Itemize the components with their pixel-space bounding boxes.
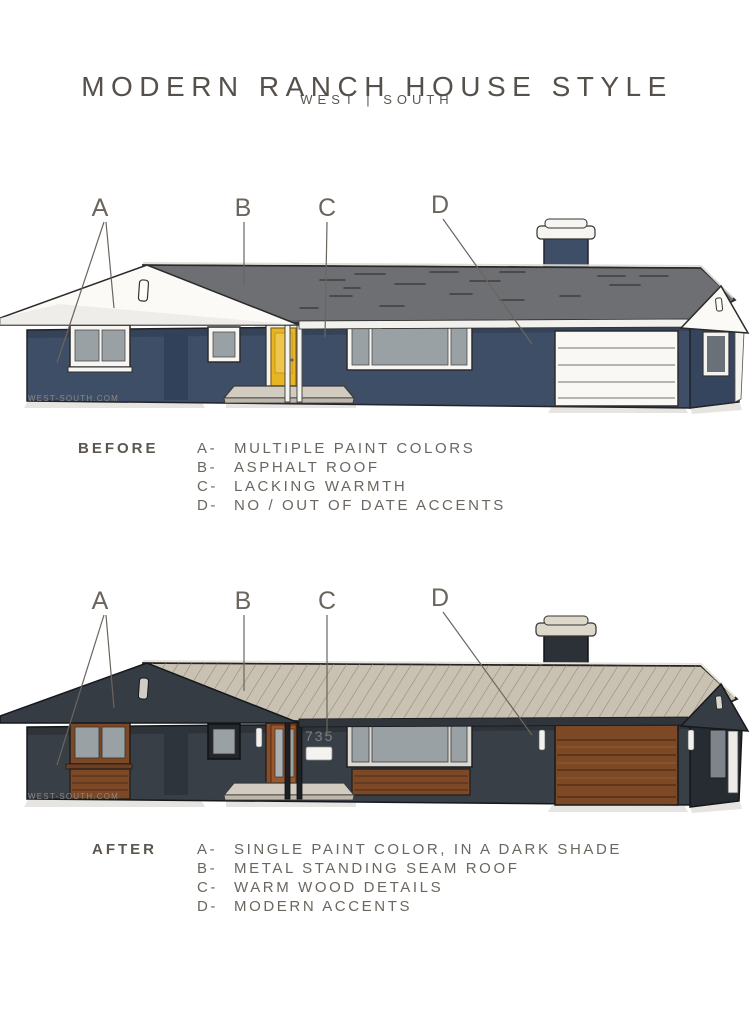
item-letter: B- [197,458,234,477]
item-text: WARM WOOD DETAILS [234,878,443,897]
callout-letter-b: B [235,587,252,615]
watermark: WEST-SOUTH.COM [28,792,119,801]
porch-post [285,322,290,402]
item-letter: D- [197,897,234,916]
page-subtitle: WEST | SOUTH [0,92,754,107]
list-item: C-LACKING WARMTH [197,477,754,496]
item-text: MODERN ACCENTS [234,897,412,916]
side-window [707,336,725,372]
callout-letter-b: B [235,194,252,222]
item-letter: C- [197,878,234,897]
gable-vent [138,280,148,302]
item-letter: A- [197,840,234,859]
modern-sconce-light [539,730,545,750]
list-item: D-NO / OUT OF DATE ACCENTS [197,496,754,515]
list-item: D-MODERN ACCENTS [197,897,754,916]
before-house-illustration: WEST-SOUTH.COM A B C D [0,180,754,430]
porch-post [297,322,302,402]
watermark: WEST-SOUTH.COM [28,394,119,403]
callout-letter-d: D [431,191,449,219]
infographic-page: MODERN RANCH HOUSE STYLE WEST | SOUTH [0,0,754,1024]
garage-door [555,331,678,406]
modern-sconce-light [256,728,262,747]
list-item: A-SINGLE PAINT COLOR, IN A DARK SHADE [197,840,754,859]
item-text: SINGLE PAINT COLOR, IN A DARK SHADE [234,840,622,859]
modern-sconce-light [688,730,694,750]
item-letter: B- [197,859,234,878]
item-text: METAL STANDING SEAM ROOF [234,859,519,878]
left-window [68,325,132,372]
callout-letter-a: A [92,587,109,615]
callout-letter-c: C [318,587,336,615]
callout-letter-c: C [318,194,336,222]
eave-fascia [299,717,689,727]
before-callout-list: BEFORE A-MULTIPLE PAINT COLORS B-ASPHALT… [0,439,754,515]
list-item: C-WARM WOOD DETAILS [197,878,754,897]
item-letter: D- [197,496,234,515]
left-window [66,722,132,799]
item-text: MULTIPLE PAINT COLORS [234,439,475,458]
item-letter: A- [197,439,234,458]
list-item: B-ASPHALT ROOF [197,458,754,477]
right-side-wall [690,324,744,408]
modern-house-number-box [306,747,332,760]
item-text: NO / OUT OF DATE ACCENTS [234,496,506,515]
callout-letter-d: D [431,584,449,612]
porch-post [285,719,290,799]
callout-letter-a: A [92,194,109,222]
center-window [208,327,240,362]
porch-post [297,719,302,799]
after-callout-list: AFTER A-SINGLE PAINT COLOR, IN A DARK SH… [0,840,754,916]
side-window [710,730,726,778]
picture-window [347,717,472,795]
front-door [266,721,300,787]
garage-door [555,725,678,805]
after-house-illustration: 735 WEST-SOUTH.COM A B C [0,575,754,830]
item-letter: C- [197,477,234,496]
item-text: ASPHALT ROOF [234,458,380,477]
right-side-wall [690,721,742,807]
list-item: B-METAL STANDING SEAM ROOF [197,859,754,878]
item-text: LACKING WARMTH [234,477,407,496]
gable-vent [715,298,722,312]
eave-fascia [299,319,689,329]
after-heading: AFTER [92,840,157,859]
front-door [266,324,300,390]
house-number: 735 [305,728,334,744]
wood-wainscot [352,769,470,795]
center-window [208,724,240,759]
gable-vent [715,696,722,710]
before-heading: BEFORE [78,439,159,458]
list-item: A-MULTIPLE PAINT COLORS [197,439,754,458]
gable-vent [138,678,148,700]
